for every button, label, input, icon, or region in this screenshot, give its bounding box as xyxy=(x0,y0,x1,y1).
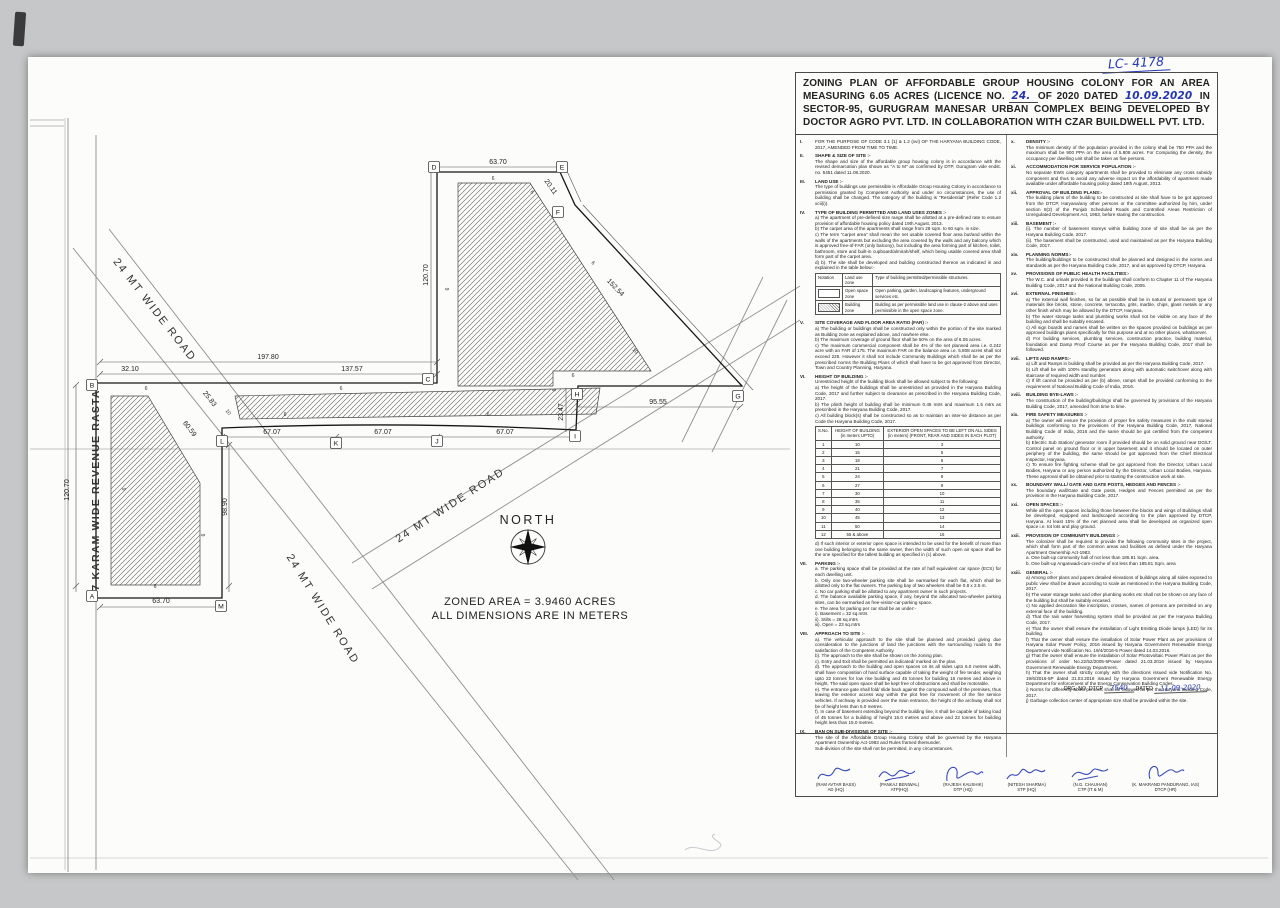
clause-body: BUILDING BYE-LAWS :-The construction of … xyxy=(1026,392,1212,409)
drg-label: DRG. NO. DTCP xyxy=(1064,686,1103,692)
table-header-row: NotationLand use zoneType of building pe… xyxy=(816,274,1001,287)
road-label: 7 KARAM WIDE REVENUE RASTA xyxy=(90,389,102,590)
clause-number: xi. xyxy=(1011,164,1026,186)
clause-paragraph: a) The owner will ensure the provision o… xyxy=(1026,418,1212,440)
table-cell: 11 xyxy=(884,497,1001,505)
clause: IV.TYPE OF BUILDING PERMITTED AND LAND U… xyxy=(800,210,1001,318)
clause-paragraph: g) That the owner shall ensure the insta… xyxy=(1026,653,1212,670)
table-cell xyxy=(816,287,843,301)
signature-scribble xyxy=(1144,761,1188,783)
road-label: 24 MT WIDE ROAD xyxy=(284,552,362,667)
table-cell: 9 xyxy=(884,481,1001,489)
clause-paragraph: b) The plinth height of building shall b… xyxy=(815,402,1001,413)
table-row: 94012 xyxy=(816,506,1001,514)
point-label: C xyxy=(426,376,431,383)
signature-ink xyxy=(1072,769,1108,780)
zoned-area-line2: ALL DIMENSIONS ARE IN METERS xyxy=(432,610,629,622)
clause-body: APPROVAL OF BUILDING PLANS:-The building… xyxy=(1026,190,1212,218)
clause-paragraph: f). In case of basement extending beyond… xyxy=(815,709,1001,726)
table-cell: 14 xyxy=(884,522,1001,530)
dimension-label: 67.07 xyxy=(496,429,514,436)
clause-body: OPEN SPACES :-While all the open spaces … xyxy=(1026,502,1212,530)
scanned-zoning-plan: NORTH ZONED AREA = 3.9460 ACRES ALL DIME… xyxy=(0,0,1280,908)
clauses-column-right: DRG. NO. DTCP 7540 DATED 11-09-2020 x.DE… xyxy=(1006,135,1217,757)
file-number-handwritten: LC- 4178 xyxy=(1102,53,1171,74)
clause-number: xxii. xyxy=(1011,533,1026,567)
dimension-label: 67.07 xyxy=(374,429,392,436)
signature-ink xyxy=(1007,769,1045,779)
table-cell: Open space zone xyxy=(843,287,873,301)
clause-paragraph: The W.C. and urinals provided in the bui… xyxy=(1026,277,1212,288)
table-cell: 3 xyxy=(884,440,1001,448)
point-label: E xyxy=(560,164,565,171)
table-cell: 10 xyxy=(831,440,883,448)
clause-body: PROVISION OF COMMUNITY BUILDINGS :-The c… xyxy=(1026,533,1212,567)
boundary-point-E: E xyxy=(557,162,568,173)
clause-paragraph: b) Electric Sub Station/ generator room … xyxy=(1026,440,1212,462)
table-cell: 24 xyxy=(831,473,883,481)
clause-paragraph: c) No applied decoration like inscriptio… xyxy=(1026,603,1212,614)
table-cell: 30 xyxy=(831,489,883,497)
clause-paragraph: d) If such interior or exterior open spa… xyxy=(815,541,1001,558)
setback-label: 6 xyxy=(122,487,128,490)
table-cell: Open parking, garden, landscaping featur… xyxy=(873,287,1001,301)
table-row: 2155 xyxy=(816,448,1001,456)
clause-number: xiii. xyxy=(1011,221,1026,249)
point-label: D xyxy=(432,164,437,171)
boundary-point-L: L xyxy=(217,436,228,447)
clause-body: HEIGHT OF BUILDING :-Unrestricted height… xyxy=(815,374,1001,558)
table-cell: 12 xyxy=(816,530,832,538)
table-cell: Notation xyxy=(816,274,843,287)
point-label: J xyxy=(435,438,438,445)
dimension-label: 137.57 xyxy=(341,366,363,373)
clause: VI.HEIGHT OF BUILDING :-Unrestricted hei… xyxy=(800,374,1001,558)
clause-paragraph: b. One built-up Anganwadi-cum-creche of … xyxy=(1026,561,1212,567)
dimension-label: 120.70 xyxy=(423,264,430,286)
clause-number: III. xyxy=(800,179,815,207)
signature-block: (N.G. CHAUHAN)CTP (IT & M) xyxy=(1068,761,1112,792)
signature-scribble xyxy=(1068,761,1112,783)
clause-body: LAND USE :-The type of buildings use per… xyxy=(815,179,1001,207)
clause-paragraph: The type of buildings use permissible is… xyxy=(815,184,1001,206)
dimension-label: 63.70 xyxy=(152,598,170,605)
clause-paragraph: d) For building services, plumbing servi… xyxy=(1026,336,1212,353)
table-cell: 1 xyxy=(816,440,832,448)
setback-label: 6 xyxy=(492,176,495,182)
clause-paragraph: b) The water storage tanks and other plu… xyxy=(1026,592,1212,603)
setback-label: 6 xyxy=(340,386,343,392)
clause-paragraph: c) To ensure fire fighting scheme shall … xyxy=(1026,462,1212,479)
signatory-designation: DTP (HQ) xyxy=(941,787,985,792)
table-cell: 12 xyxy=(884,506,1001,514)
table-cell: 8 xyxy=(884,473,1001,481)
document-title: ZONING PLAN OF AFFORDABLE GROUP HOUSING … xyxy=(796,73,1217,135)
point-label: M xyxy=(218,603,224,610)
clause-paragraph: d. The balance available parking space, … xyxy=(815,594,1001,605)
table-cell: 9 xyxy=(816,506,832,514)
point-label: I xyxy=(574,433,576,440)
clause-body: DENSITY :-The minimum density of the pop… xyxy=(1026,139,1212,161)
setback-label: 6 xyxy=(572,373,575,379)
clause-body: FIRE SAFETY MEASURES :-a) The owner will… xyxy=(1026,412,1212,479)
table-cell: Land use zone xyxy=(843,274,873,287)
signature-block: (RAM AVTAR BASS)AD (HQ) xyxy=(814,761,858,792)
dimension-label: 20.11 xyxy=(542,178,558,196)
table-row: 83511 xyxy=(816,497,1001,505)
clause: xiii.BASEMENT :-(i). The number of basem… xyxy=(1011,221,1212,249)
table-cell: 2 xyxy=(816,448,832,456)
signatory-designation: CTP (IT & M) xyxy=(1068,787,1112,792)
hatched-zone-swatch xyxy=(818,303,840,312)
north-compass-icon xyxy=(510,529,546,565)
clause-paragraph: c) All building block(s) shall be constr… xyxy=(815,413,1001,424)
clause-paragraph: The construction of the building/buildin… xyxy=(1026,398,1212,409)
dimension-label: 152.54 xyxy=(605,278,625,298)
clause-body: APPROACH TO SITE :-a). The vehicular app… xyxy=(815,631,1001,726)
clause-paragraph: e) That the owner shall ensure the insta… xyxy=(1026,626,1212,637)
road-label: 24 MT WIDE ROAD xyxy=(394,466,508,546)
boundary-point-F: F xyxy=(553,207,564,218)
dimension-label: 95.55 xyxy=(649,399,667,406)
table-row: Open space zoneOpen parking, garden, lan… xyxy=(816,287,1001,301)
dimension-label: 98.90 xyxy=(222,498,229,516)
clause: xii.APPROVAL OF BUILDING PLANS:-The buil… xyxy=(1011,190,1212,218)
table-row: 1255 & above16 xyxy=(816,530,1001,538)
clause-paragraph: (ii). The basement shall be constructed,… xyxy=(1026,238,1212,249)
clause-paragraph: j) Garbage collection center of appropri… xyxy=(1026,698,1212,704)
clause: xi.ACCOMMODATION FOR SERVICE POPULATION … xyxy=(1011,164,1212,186)
clause: xvii.LIFTS AND RAMPS:-a) Lift and Ramps … xyxy=(1011,356,1212,390)
clause-number: I. xyxy=(800,139,815,150)
clause-body: BOUNDARY WALL/ GATE AND GATE POSTS, HEDG… xyxy=(1026,482,1212,499)
clause-paragraph: d) That the rain water harvesting system… xyxy=(1026,614,1212,625)
table-cell: 35 xyxy=(831,497,883,505)
dimension-label: 60.59 xyxy=(181,420,197,438)
clause: xix.FIRE SAFETY MEASURES :-a) The owner … xyxy=(1011,412,1212,479)
table-row: 104513 xyxy=(816,514,1001,522)
signature-scribble xyxy=(877,761,921,783)
clause: II.SHAPE & SIZE OF SITE :-The shape and … xyxy=(800,153,1001,175)
clauses-column-left: I.FOR THE PURPOSE OF CODE 3.1 (1) & 1.2 … xyxy=(796,135,1006,757)
table-cell: 10 xyxy=(816,514,832,522)
clause-number: xiv. xyxy=(1011,252,1026,269)
clause-paragraph: d) b). The site shall be developed and b… xyxy=(815,260,1001,271)
table-cell: 5 xyxy=(884,448,1001,456)
clause-paragraph: c) All sign boards and names shall be wr… xyxy=(1026,325,1212,336)
title-part2: OF 2020 DATED xyxy=(1038,91,1123,102)
signature-ink xyxy=(879,770,915,781)
clause: xxi.OPEN SPACES :-While all the open spa… xyxy=(1011,502,1212,530)
clause-body: EXTERNAL FINISHES:-a) The external wall … xyxy=(1026,291,1212,353)
clause-paragraph: iii). Open = 23 sq.mtrs xyxy=(815,622,1001,628)
clause-body: BASEMENT :-(i). The number of basement s… xyxy=(1026,221,1212,249)
clause: xiv.PLANNING NORMS:-The building/buildin… xyxy=(1011,252,1212,269)
clause-paragraph: FOR THE PURPOSE OF CODE 3.1 (1) & 1.2 (x… xyxy=(815,139,1001,150)
table-cell: 6 xyxy=(816,481,832,489)
table-row: Building zoneBuilding as per permissible… xyxy=(816,301,1001,315)
clause-paragraph: a) The building or buildings shall be co… xyxy=(815,326,1001,337)
clause-number: xvii. xyxy=(1011,356,1026,390)
table-row: 5248 xyxy=(816,473,1001,481)
clause-paragraph: a) The external wall finishes, so far as… xyxy=(1026,297,1212,314)
table-row: 115014 xyxy=(816,522,1001,530)
point-label: K xyxy=(334,440,339,447)
table-cell: 3 xyxy=(816,456,832,464)
clause-paragraph: d). The approach to the building and ope… xyxy=(815,664,1001,686)
clause-paragraph: a). The vehicular approach to the site s… xyxy=(815,637,1001,654)
boundary-point-D: D xyxy=(429,162,440,173)
table-cell: S.No. xyxy=(816,427,832,440)
table-cell: 6 xyxy=(884,456,1001,464)
clause-paragraph: c) The term "carpet area" shall mean the… xyxy=(815,232,1001,260)
clause-paragraph: b. Only one two-wheeler parking site sha… xyxy=(815,578,1001,589)
table-cell: 50 xyxy=(831,522,883,530)
clause-number: xv. xyxy=(1011,271,1026,288)
table-cell: 45 xyxy=(831,514,883,522)
signatory-designation: ATP(HQ) xyxy=(877,787,921,792)
signatory-designation: STP (HQ) xyxy=(1005,787,1049,792)
table-cell: Type of building permitted/permissible s… xyxy=(873,274,1001,287)
clause: xxii.PROVISION OF COMMUNITY BUILDINGS :-… xyxy=(1011,533,1212,567)
clause-body: ACCOMMODATION FOR SERVICE POPULATION :-N… xyxy=(1026,164,1212,186)
boundary-point-M: M xyxy=(216,601,227,612)
clause-paragraph: b) The water storage tanks and plumbing … xyxy=(1026,314,1212,325)
clause-paragraph: f) That the owner shall ensure the insta… xyxy=(1026,637,1212,654)
table-cell: 4 xyxy=(816,465,832,473)
setback-label: 6 xyxy=(487,412,490,418)
table-row: 3186 xyxy=(816,456,1001,464)
building-zones xyxy=(111,183,651,585)
clause-body: TYPE OF BUILDING PERMITTED AND LAND USES… xyxy=(815,210,1001,318)
clause: xvi.EXTERNAL FINISHES:-a) The external w… xyxy=(1011,291,1212,353)
clause: V.SITE COVERAGE AND FLOOR AREA RATIO (FA… xyxy=(800,320,1001,370)
clause-paragraph: No separate EWS category apartments shal… xyxy=(1026,170,1212,187)
dimension-label: 23.47 xyxy=(558,403,565,421)
clause-number: xviii. xyxy=(1011,392,1026,409)
setback-label: 6 xyxy=(284,412,287,418)
clause-paragraph: b) Lift shall be with 100% standby gener… xyxy=(1026,367,1212,378)
clause: xviii.BUILDING BYE-LAWS :-The constructi… xyxy=(1011,392,1212,409)
boundary-point-C: C xyxy=(423,374,434,385)
boundary-point-A: A xyxy=(87,591,98,602)
clause: xx.BOUNDARY WALL/ GATE AND GATE POSTS, H… xyxy=(1011,482,1212,499)
setback-label: 6 xyxy=(590,260,596,266)
height-table: S.No.HEIGHT OF BUILDING (in meters UPTO)… xyxy=(815,426,1001,539)
clause-body: PARKING :-a. The parking space shall be … xyxy=(815,561,1001,628)
table-row: 73010 xyxy=(816,489,1001,497)
point-label: L xyxy=(220,438,224,445)
table-cell: Building as per permissible land use in … xyxy=(873,301,1001,315)
clause-body: FOR THE PURPOSE OF CODE 3.1 (1) & 1.2 (x… xyxy=(815,139,1001,150)
clause-paragraph: (i). The number of basement storeys with… xyxy=(1026,226,1212,237)
clause-number: xx. xyxy=(1011,482,1026,499)
signature-block: (K. MAKRAND PANDURANG, IAS)DTCP (HR) xyxy=(1132,761,1199,792)
clause-paragraph: While all the open spaces including thos… xyxy=(1026,508,1212,530)
table-row: 6279 xyxy=(816,481,1001,489)
clause: III.LAND USE :-The type of buildings use… xyxy=(800,179,1001,207)
drg-dated-label: DATED xyxy=(1136,686,1153,692)
clause-number: xxi. xyxy=(1011,502,1026,530)
clause-paragraph: The shape and size of the affordable gro… xyxy=(815,159,1001,176)
dimension-label: 120.70 xyxy=(64,479,71,501)
table-cell: 7 xyxy=(816,489,832,497)
drg-date-handwritten: 11-09-2020 xyxy=(1154,685,1207,693)
point-label: A xyxy=(90,593,95,600)
point-label: F xyxy=(556,209,560,216)
clause-number: xii. xyxy=(1011,190,1026,218)
table-cell xyxy=(816,301,843,315)
signature-scribble xyxy=(814,761,858,783)
clause-number: V. xyxy=(800,320,815,370)
table-cell: 16 xyxy=(884,530,1001,538)
setback-label: 6 xyxy=(154,584,157,590)
dimension-label: 32.10 xyxy=(121,366,139,373)
signatory-designation: DTCP (HR) xyxy=(1132,787,1199,792)
north-label: NORTH xyxy=(500,513,557,527)
signature-ink xyxy=(947,767,983,781)
dimension-label: 197.80 xyxy=(257,354,279,361)
clause-paragraph: The building plans of the building to be… xyxy=(1026,195,1212,217)
point-label: H xyxy=(575,391,580,398)
clause: x.DENSITY :-The minimum density of the p… xyxy=(1011,139,1212,161)
signature-ink xyxy=(818,768,850,779)
table-cell: 13 xyxy=(884,514,1001,522)
boundary-point-K: K xyxy=(331,438,342,449)
table-cell: 18 xyxy=(831,456,883,464)
signature-block: (PANKAJ BENIWAL)ATP(HQ) xyxy=(877,761,921,792)
signature-block: (NITESH SHARMA)STP (HQ) xyxy=(1005,761,1049,792)
signature-scribble xyxy=(941,761,985,783)
clause-paragraph: e). The entrance gate shall fold/ slide … xyxy=(815,687,1001,709)
drawing-number-row: DRG. NO. DTCP 7540 DATED 11-09-2020 xyxy=(1064,686,1207,693)
table-cell: 21 xyxy=(831,465,883,473)
dimension-label: 67.07 xyxy=(263,429,281,436)
clause-paragraph: c) The maximum commercial component shal… xyxy=(815,343,1001,371)
table-cell: EXTERIOR OPEN SPACES TO BE LEFT ON ALL S… xyxy=(884,427,1001,440)
clause-paragraph: The building/buildings to be constructed… xyxy=(1026,257,1212,268)
clause-body: PROVISIONS OF PUBLIC HEALTH FACILITIES:-… xyxy=(1026,271,1212,288)
table-cell: 55 & above xyxy=(831,530,883,538)
clause-number: xix. xyxy=(1011,412,1026,479)
clause: VIII.APPROACH TO SITE :-a). The vehicula… xyxy=(800,631,1001,726)
clause-paragraph: a. The parking space shall be provided a… xyxy=(815,566,1001,577)
clause: VII.PARKING :-a. The parking space shall… xyxy=(800,561,1001,628)
table-cell: 15 xyxy=(831,448,883,456)
open-zone-swatch xyxy=(818,289,840,298)
table-cell: 8 xyxy=(816,497,832,505)
clause-paragraph: The minimum density of the population pr… xyxy=(1026,145,1212,162)
setback-label: 6 xyxy=(145,386,148,392)
table-cell: 11 xyxy=(816,522,832,530)
table-cell: 27 xyxy=(831,481,883,489)
clause-body: PLANNING NORMS:-The building/buildings t… xyxy=(1026,252,1212,269)
boundary-point-B: B xyxy=(87,380,98,391)
clause-paragraph: The colonizer shall be required to provi… xyxy=(1026,539,1212,556)
licence-date-handwritten: 10.09.2020 xyxy=(1123,90,1200,103)
building-zone-strip xyxy=(235,388,600,419)
table-row: 1103 xyxy=(816,440,1001,448)
clause-columns: I.FOR THE PURPOSE OF CODE 3.1 (1) & 1.2 … xyxy=(796,135,1217,757)
clause-body: SITE COVERAGE AND FLOOR AREA RATIO (FAR)… xyxy=(815,320,1001,370)
setback-label: 6 xyxy=(201,533,207,536)
clause-paragraph: a) The apartment of pre-defined size ran… xyxy=(815,215,1001,226)
clause-number: IV. xyxy=(800,210,815,318)
table-cell: HEIGHT OF BUILDING (in meters UPTO) xyxy=(831,427,883,440)
road-label: 24 MT WIDE ROAD xyxy=(110,256,198,364)
clause-body: SHAPE & SIZE OF SITE :-The shape and siz… xyxy=(815,153,1001,175)
clause-number: VI. xyxy=(800,374,815,558)
clause-number: x. xyxy=(1011,139,1026,161)
clause-paragraph: a) Among other plans and papers detailed… xyxy=(1026,575,1212,592)
point-label: G xyxy=(735,393,740,400)
table-row: 4217 xyxy=(816,465,1001,473)
dimension-label: 25.83 xyxy=(201,390,217,408)
signature-strip: (RAM AVTAR BASS)AD (HQ)(PANKAJ BENIWAL)A… xyxy=(796,733,1217,796)
signature-block: (RAJESH KAUSHIK)DTP (HQ) xyxy=(941,761,985,792)
clause-body: LIFTS AND RAMPS:-a) Lift and Ramps in bu… xyxy=(1026,356,1212,390)
clause: xv.PROVISIONS OF PUBLIC HEALTH FACILITIE… xyxy=(1011,271,1212,288)
boundary-point-J: J xyxy=(432,436,443,447)
clause-number: xvi. xyxy=(1011,291,1026,353)
notation-table: NotationLand use zoneType of building pe… xyxy=(815,273,1001,315)
table-header-row: S.No.HEIGHT OF BUILDING (in meters UPTO)… xyxy=(816,427,1001,440)
dimension-label: 63.70 xyxy=(489,159,507,166)
setback-label: 6 xyxy=(445,287,451,290)
zoned-area-line1: ZONED AREA = 3.9460 ACRES xyxy=(444,596,616,608)
table-cell: 10 xyxy=(884,489,1001,497)
drg-number-handwritten: 7540 xyxy=(1104,686,1134,694)
clause-paragraph: c) If lift cannot be provided as per (b)… xyxy=(1026,378,1212,389)
licence-number-handwritten: 24. xyxy=(1009,90,1037,103)
setback-label: 6 xyxy=(552,388,558,391)
point-label: B xyxy=(90,382,95,389)
boundary-point-G: G xyxy=(733,391,744,402)
signatory-designation: AD (HQ) xyxy=(814,787,858,792)
clause-number: VIII. xyxy=(800,631,815,726)
clause-number: VII. xyxy=(800,561,815,628)
table-cell: Building zone xyxy=(843,301,873,315)
clause-number: II. xyxy=(800,153,815,175)
setback-label: 10 xyxy=(224,408,232,416)
table-cell: 5 xyxy=(816,473,832,481)
clause-number: xxiii. xyxy=(1011,570,1026,704)
table-cell: 40 xyxy=(831,506,883,514)
clause-paragraph: The boundary wall/Gate and Gate posts, H… xyxy=(1026,488,1212,499)
clause-paragraph: a) The height of the buildings shall be … xyxy=(815,385,1001,402)
clause: I.FOR THE PURPOSE OF CODE 3.1 (1) & 1.2 … xyxy=(800,139,1001,150)
zoning-conditions-panel: ZONING PLAN OF AFFORDABLE GROUP HOUSING … xyxy=(795,72,1218,797)
signature-scribble xyxy=(1005,761,1049,783)
boundary-point-I: I xyxy=(570,431,581,442)
signature-ink xyxy=(1149,766,1184,779)
table-cell: 7 xyxy=(884,465,1001,473)
boundary-point-H: H xyxy=(572,389,583,400)
